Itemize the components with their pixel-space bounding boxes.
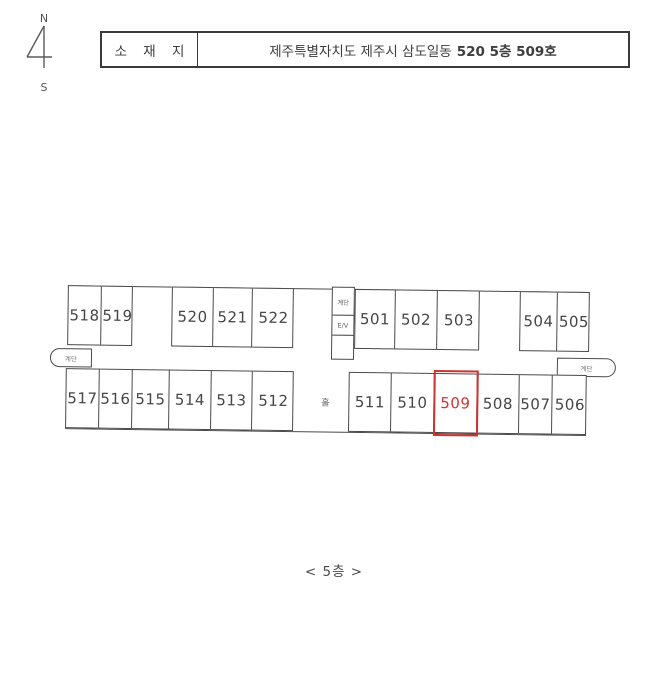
room-cell-506: 506	[552, 376, 588, 434]
address-prefix: 제주특별자치도 제주시 삼도일동	[269, 40, 451, 60]
room-block-520-522: 520 521 522	[171, 287, 294, 349]
core-elevator-box: E/V	[331, 315, 354, 336]
location-table: 소 재 지 제주특별자치도 제주시 삼도일동 520 5층 509호	[100, 31, 630, 68]
room-cell-511: 511	[349, 373, 392, 432]
room-509-highlight-outline	[433, 370, 479, 437]
room-cell-512: 512	[252, 372, 295, 431]
room-cell-503: 503	[437, 291, 481, 350]
compass-arrow-diagonal	[27, 26, 44, 57]
room-cell-521: 521	[213, 288, 253, 347]
top-outer-wall	[68, 285, 590, 293]
location-address: 제주특별자치도 제주시 삼도일동 520 5층 509호	[198, 33, 628, 66]
location-label: 소 재 지	[102, 33, 198, 66]
room-cell-515: 515	[132, 370, 170, 428]
compass-south-label: S	[41, 81, 48, 94]
hall-label: 홀	[321, 395, 329, 408]
core-elevator-label: E/V	[337, 321, 348, 329]
hall-area: 홀	[296, 371, 355, 432]
room-cell-513: 513	[211, 371, 253, 430]
core-empty-box	[331, 335, 354, 360]
room-cell-508: 508	[477, 375, 520, 434]
room-cell-507: 507	[519, 375, 553, 433]
left-stairs-label: 계단	[65, 353, 77, 363]
floor-caption: < 5층 >	[0, 560, 658, 580]
room-cell-510: 510	[391, 373, 435, 432]
room-block-504-505: 504 505	[519, 291, 590, 352]
room-cell-514: 514	[169, 371, 212, 430]
room-block-501-503: 501 502 503	[354, 289, 480, 351]
room-cell-505: 505	[557, 293, 591, 351]
room-cell-501: 501	[355, 290, 396, 349]
room-cell-504: 504	[520, 292, 558, 350]
room-cell-520: 520	[172, 288, 214, 347]
core-stairs-box: 계단	[332, 287, 355, 316]
room-block-518-519: 518 519	[67, 285, 133, 346]
room-cell-519: 519	[101, 287, 134, 345]
floor-plan-document: { "compass": { "north": "N", "south": "S…	[0, 0, 658, 700]
address-unit: 520 5층 509호	[457, 40, 557, 60]
left-stairs: 계단	[50, 348, 92, 368]
room-cell-517: 517	[66, 369, 100, 427]
room-cell-522: 522	[252, 289, 295, 348]
room-cell-518: 518	[68, 286, 102, 344]
room-block-517-512: 517 516 515 514 513 512	[65, 368, 294, 431]
compass-north-label: N	[40, 12, 48, 25]
north-arrow-compass: N S	[20, 4, 68, 98]
right-stairs-label: 계단	[580, 362, 592, 372]
floor-plan: 518 519 520 521 522 계단 E/V 501 502 503 5…	[53, 278, 630, 461]
room-cell-516: 516	[99, 370, 133, 428]
core-stairs-label: 계단	[337, 296, 349, 306]
room-cell-502: 502	[395, 290, 438, 349]
